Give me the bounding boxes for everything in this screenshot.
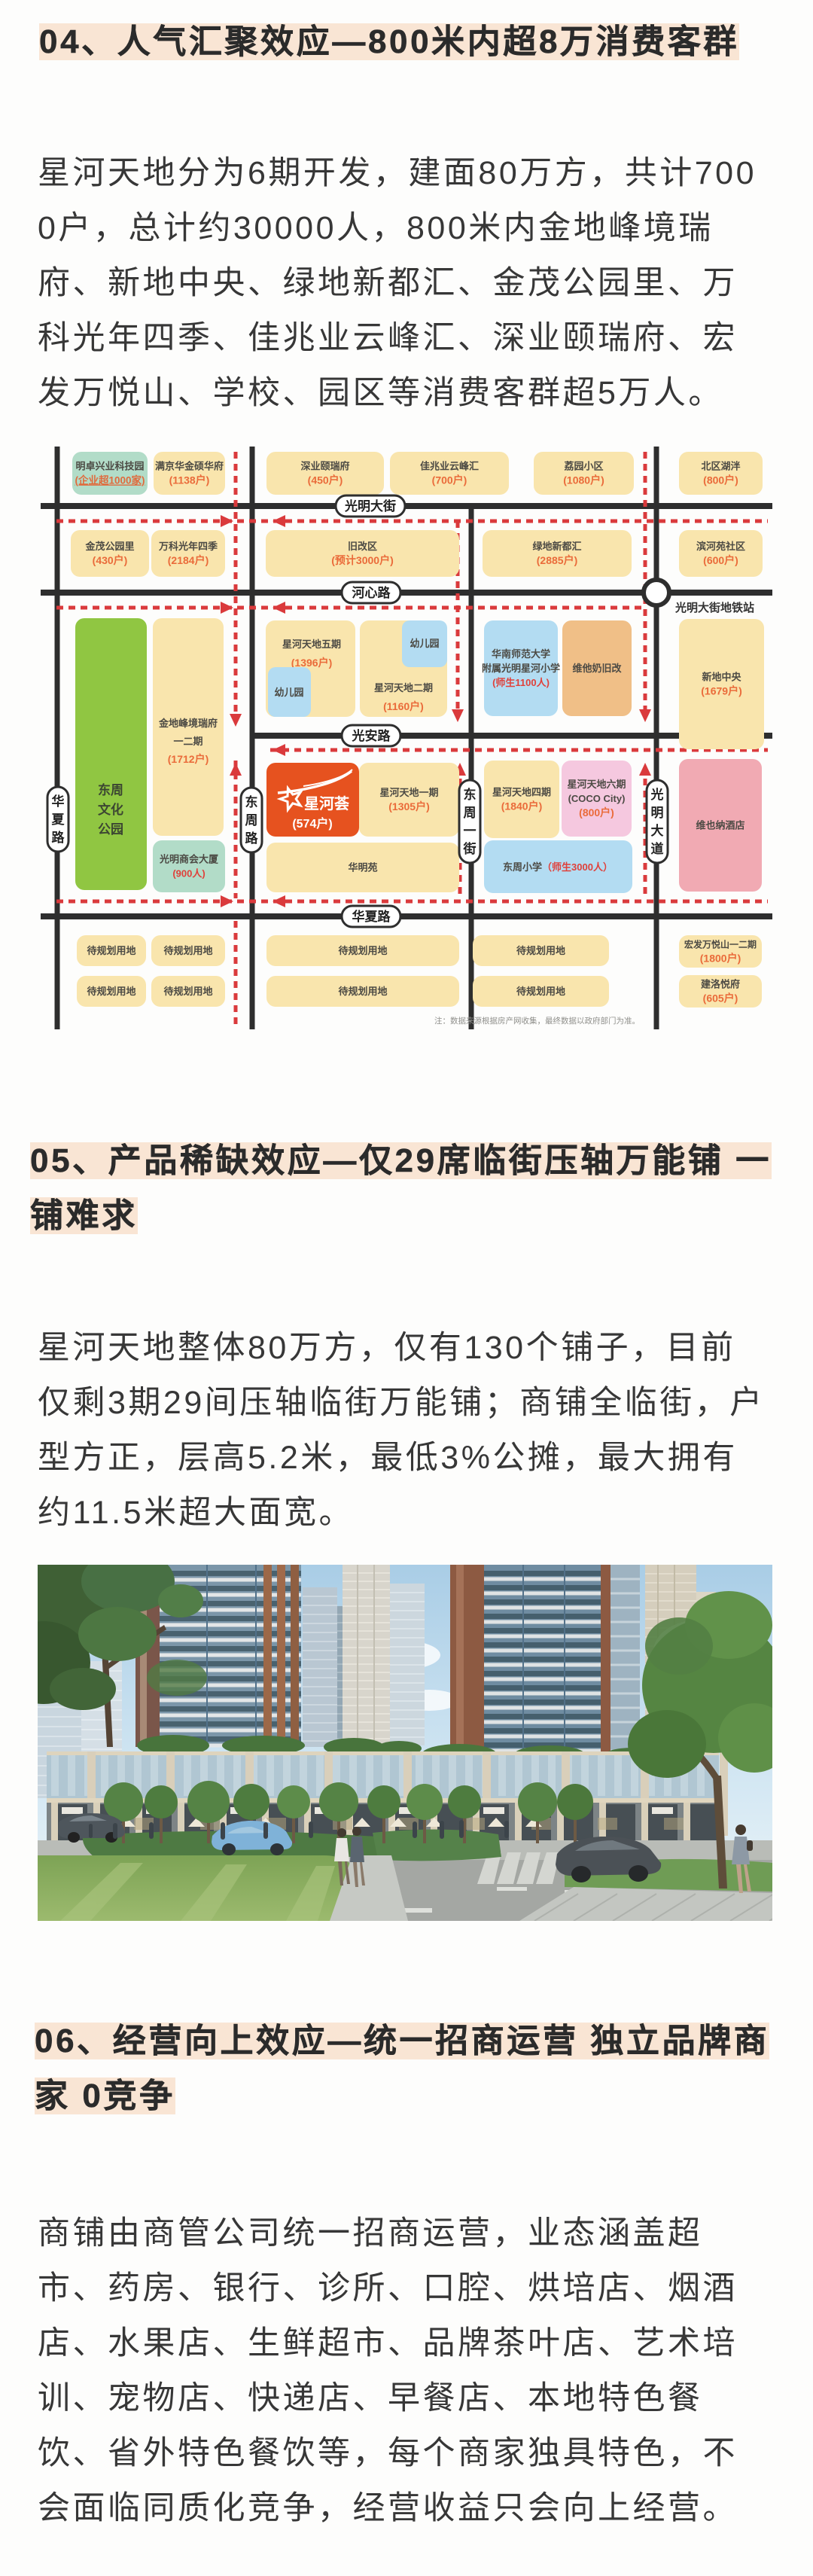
svg-text:(430户): (430户): [93, 554, 128, 566]
svg-text:路: 路: [245, 831, 259, 846]
svg-text:星河天地五期: 星河天地五期: [282, 639, 341, 650]
svg-text:河心路: 河心路: [352, 585, 391, 600]
svg-text:待规划用地: 待规划用地: [337, 986, 387, 997]
svg-text:一二期: 一二期: [173, 736, 202, 747]
svg-text:光明大街: 光明大街: [344, 498, 396, 514]
svg-text:道: 道: [651, 841, 664, 856]
svg-text:佳兆业云峰汇: 佳兆业云峰汇: [420, 461, 479, 472]
svg-text:(预计3000户): (预计3000户): [331, 554, 393, 566]
svg-text:新地中央: 新地中央: [702, 672, 741, 683]
svg-text:星河天地四期: 星河天地四期: [492, 787, 551, 798]
svg-text:星河天地六期: 星河天地六期: [567, 779, 626, 790]
svg-text:宏发万悦山一二期: 宏发万悦山一二期: [684, 939, 757, 950]
svg-text:(600户): (600户): [703, 554, 738, 566]
svg-text:旧改区: 旧改区: [348, 541, 377, 552]
svg-text:建洛悦府: 建洛悦府: [701, 979, 740, 990]
svg-text:待规划用地: 待规划用地: [163, 945, 212, 956]
svg-text:待规划用地: 待规划用地: [86, 986, 135, 997]
svg-text:待规划用地: 待规划用地: [516, 945, 565, 956]
svg-text:(574户): (574户): [292, 816, 332, 831]
svg-text:维他奶旧改: 维他奶旧改: [572, 663, 622, 674]
svg-text:金茂公园里: 金茂公园里: [84, 541, 134, 552]
svg-text:维也纳酒店: 维也纳酒店: [696, 820, 744, 831]
svg-text:光: 光: [650, 787, 664, 802]
svg-text:华南师范大学: 华南师范大学: [492, 648, 550, 660]
svg-text:待规划用地: 待规划用地: [86, 945, 135, 956]
svg-text:华明苑: 华明苑: [348, 862, 377, 873]
svg-text:星河荟: 星河荟: [304, 794, 349, 812]
svg-text:明: 明: [651, 806, 664, 820]
svg-text:文化: 文化: [98, 802, 123, 817]
svg-text:待规划用地: 待规划用地: [337, 945, 387, 956]
svg-text:(1679户): (1679户): [701, 685, 741, 697]
svg-text:(1712户): (1712户): [168, 753, 209, 765]
svg-text:街: 街: [463, 841, 477, 856]
svg-text:万科光年四季: 万科光年四季: [158, 541, 218, 552]
svg-text:北区湖泮: 北区湖泮: [701, 461, 740, 472]
svg-text:绿地新都汇: 绿地新都汇: [532, 541, 581, 552]
svg-text:华: 华: [52, 794, 65, 809]
svg-text:周: 周: [464, 806, 477, 820]
svg-text:(450户): (450户): [308, 474, 343, 486]
svg-text:东周小学（师生3000人）: 东周小学（师生3000人）: [503, 861, 613, 873]
svg-text:幼儿园: 幼儿园: [274, 687, 303, 698]
svg-text:滨河苑社区: 滨河苑社区: [696, 541, 745, 552]
svg-text:一: 一: [464, 824, 477, 838]
svg-text:(COCO City): (COCO City): [568, 793, 626, 804]
svg-text:(800户): (800户): [579, 806, 614, 819]
svg-text:(2885户): (2885户): [537, 554, 577, 566]
svg-text:待规划用地: 待规划用地: [163, 986, 212, 997]
svg-text:附属光明星河小学: 附属光明星河小学: [482, 663, 560, 674]
svg-text:(900人): (900人): [172, 868, 205, 879]
svg-text:华夏路: 华夏路: [352, 909, 391, 924]
svg-text:大: 大: [651, 823, 664, 838]
svg-text:光明大街地铁站: 光明大街地铁站: [674, 601, 754, 614]
svg-text:注：数据来源根据房产网收集，最终数据以政府部门为准。: 注：数据来源根据房产网收集，最终数据以政府部门为准。: [434, 1016, 640, 1026]
svg-text:明卓兴业科技园: 明卓兴业科技园: [75, 461, 144, 472]
svg-text:(1080户): (1080户): [563, 474, 604, 486]
svg-text:(1305户): (1305户): [388, 800, 429, 812]
svg-text:路: 路: [52, 830, 65, 845]
svg-text:(师生1100人): (师生1100人): [492, 677, 550, 688]
svg-text:(605户): (605户): [703, 992, 738, 1004]
svg-text:满京华金硕华府: 满京华金硕华府: [155, 461, 224, 472]
svg-text:星河天地二期: 星河天地二期: [374, 682, 433, 694]
svg-text:(1840户): (1840户): [501, 800, 542, 812]
svg-text:(2184户): (2184户): [168, 554, 209, 566]
svg-text:周: 周: [245, 813, 258, 828]
svg-text:东: 东: [245, 794, 258, 809]
svg-text:光安路: 光安路: [352, 728, 391, 743]
svg-text:荔园小区: 荔园小区: [563, 461, 603, 472]
svg-text:(1800户): (1800户): [700, 953, 741, 965]
svg-text:待规划用地: 待规划用地: [516, 986, 565, 997]
svg-text:(1138户): (1138户): [169, 474, 210, 486]
svg-text:东周: 东周: [98, 782, 123, 797]
svg-text:(企业超1000家): (企业超1000家): [75, 474, 145, 486]
svg-text:(800户): (800户): [703, 474, 738, 486]
svg-text:深业颐瑞府: 深业颐瑞府: [300, 461, 349, 472]
svg-text:(700户): (700户): [432, 474, 467, 486]
svg-text:金地峰境瑞府: 金地峰境瑞府: [158, 718, 218, 729]
svg-text:夏: 夏: [52, 812, 65, 827]
svg-text:东: 东: [464, 787, 477, 802]
svg-text:公园: 公园: [98, 822, 123, 837]
svg-text:(1160户): (1160户): [383, 700, 424, 712]
svg-text:光明商会大厦: 光明商会大厦: [159, 854, 219, 865]
svg-text:(1396户): (1396户): [291, 657, 332, 669]
svg-text:星河天地一期: 星河天地一期: [379, 787, 438, 798]
svg-text:幼儿园: 幼儿园: [410, 638, 439, 649]
